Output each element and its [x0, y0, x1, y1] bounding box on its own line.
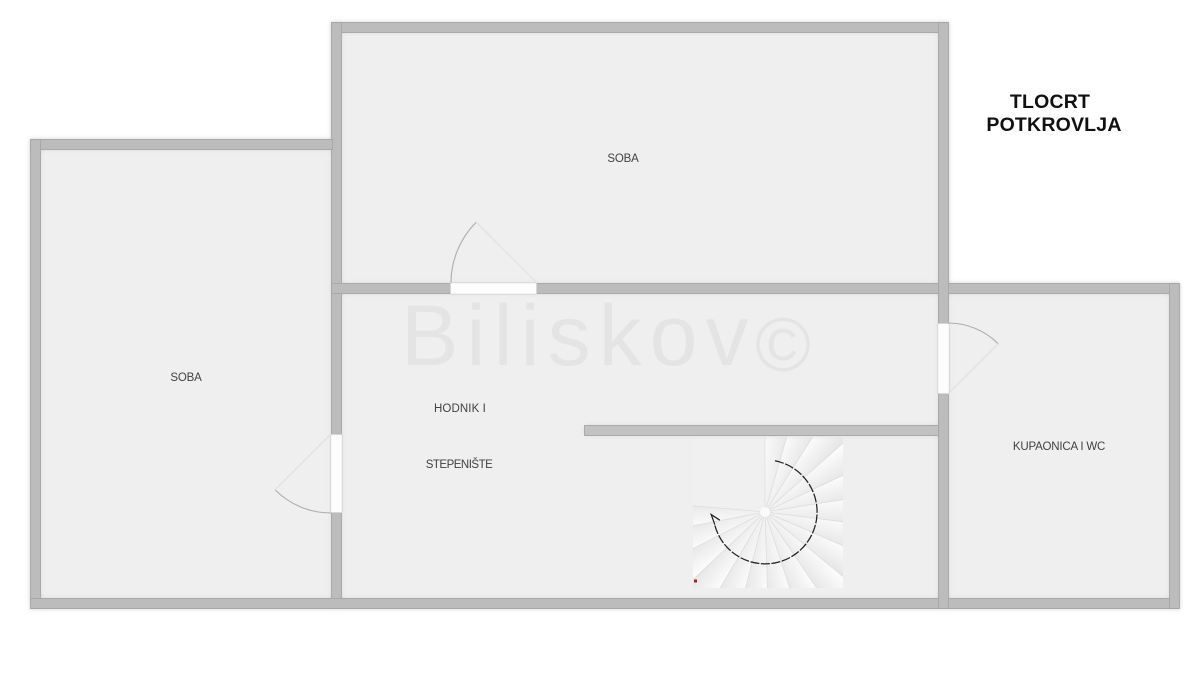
svg-text:©: ©	[755, 303, 811, 388]
svg-text:HODNIK I: HODNIK I	[434, 403, 486, 415]
svg-text:SOBA: SOBA	[170, 372, 202, 384]
svg-text:KUPAONICA I WC: KUPAONICA I WC	[1013, 441, 1105, 453]
svg-text:STEPENIŠTE: STEPENIŠTE	[426, 458, 493, 471]
svg-text:Biliskov: Biliskov	[401, 288, 757, 384]
svg-text:SOBA: SOBA	[607, 153, 639, 165]
svg-text:POTKROVLJA: POTKROVLJA	[986, 114, 1121, 136]
svg-text:TLOCRT: TLOCRT	[1010, 91, 1090, 113]
